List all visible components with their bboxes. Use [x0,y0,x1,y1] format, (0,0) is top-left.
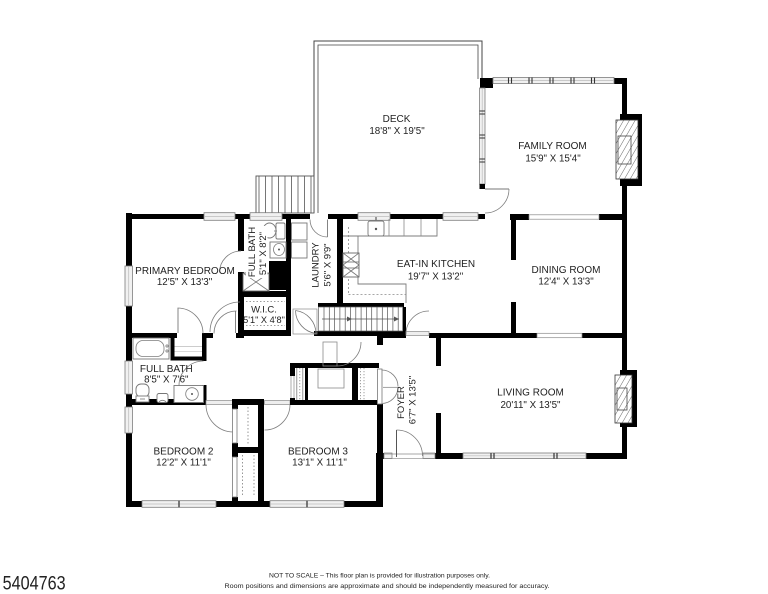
svg-text:5'1" X 4'8": 5'1" X 4'8" [243,315,285,325]
svg-text:18'8" X 19'5": 18'8" X 19'5" [369,126,425,137]
svg-text:19'7" X 13'2": 19'7" X 13'2" [408,271,464,282]
svg-text:15'9" X 15'4": 15'9" X 15'4" [525,153,581,164]
svg-text:DINING ROOM: DINING ROOM [532,265,601,276]
svg-text:20'11" X 13'5": 20'11" X 13'5" [500,400,561,411]
svg-text:12'4" X 13'3": 12'4" X 13'3" [538,277,594,288]
svg-text:13'1" X 11'1": 13'1" X 11'1" [292,458,347,469]
svg-text:NOT TO SCALE – This floor plan: NOT TO SCALE – This floor plan is provid… [269,573,490,580]
svg-text:5404763: 5404763 [3,572,66,594]
svg-text:FULL BATH: FULL BATH [140,364,193,375]
svg-text:12'2" X 11'1": 12'2" X 11'1" [156,458,211,469]
svg-text:EAT-IN KITCHEN: EAT-IN KITCHEN [397,259,475,270]
svg-text:BEDROOM 2: BEDROOM 2 [153,447,213,458]
svg-text:8'5" X 7'6": 8'5" X 7'6" [144,375,189,386]
svg-text:6'7" X 13'5": 6'7" X 13'5" [408,376,419,424]
svg-text:Room positions and dimensions: Room positions and dimensions are approx… [225,583,550,590]
svg-text:W.I.C.: W.I.C. [251,304,277,315]
svg-text:LAUNDRY: LAUNDRY [311,242,322,288]
svg-text:FOYER: FOYER [396,386,407,419]
svg-text:12'5" X 13'3": 12'5" X 13'3" [157,277,213,288]
svg-text:5'1" X 8'2": 5'1" X 8'2" [258,232,269,275]
svg-text:PRIMARY BEDROOM: PRIMARY BEDROOM [135,266,235,277]
svg-text:5'6" X 9'9": 5'6" X 9'9" [323,243,334,286]
svg-text:BEDROOM 3: BEDROOM 3 [288,447,348,458]
svg-text:FULL BATH: FULL BATH [247,227,258,277]
svg-text:LIVING ROOM: LIVING ROOM [497,388,564,399]
svg-text:FAMILY ROOM: FAMILY ROOM [518,141,587,152]
svg-text:DECK: DECK [383,114,411,125]
